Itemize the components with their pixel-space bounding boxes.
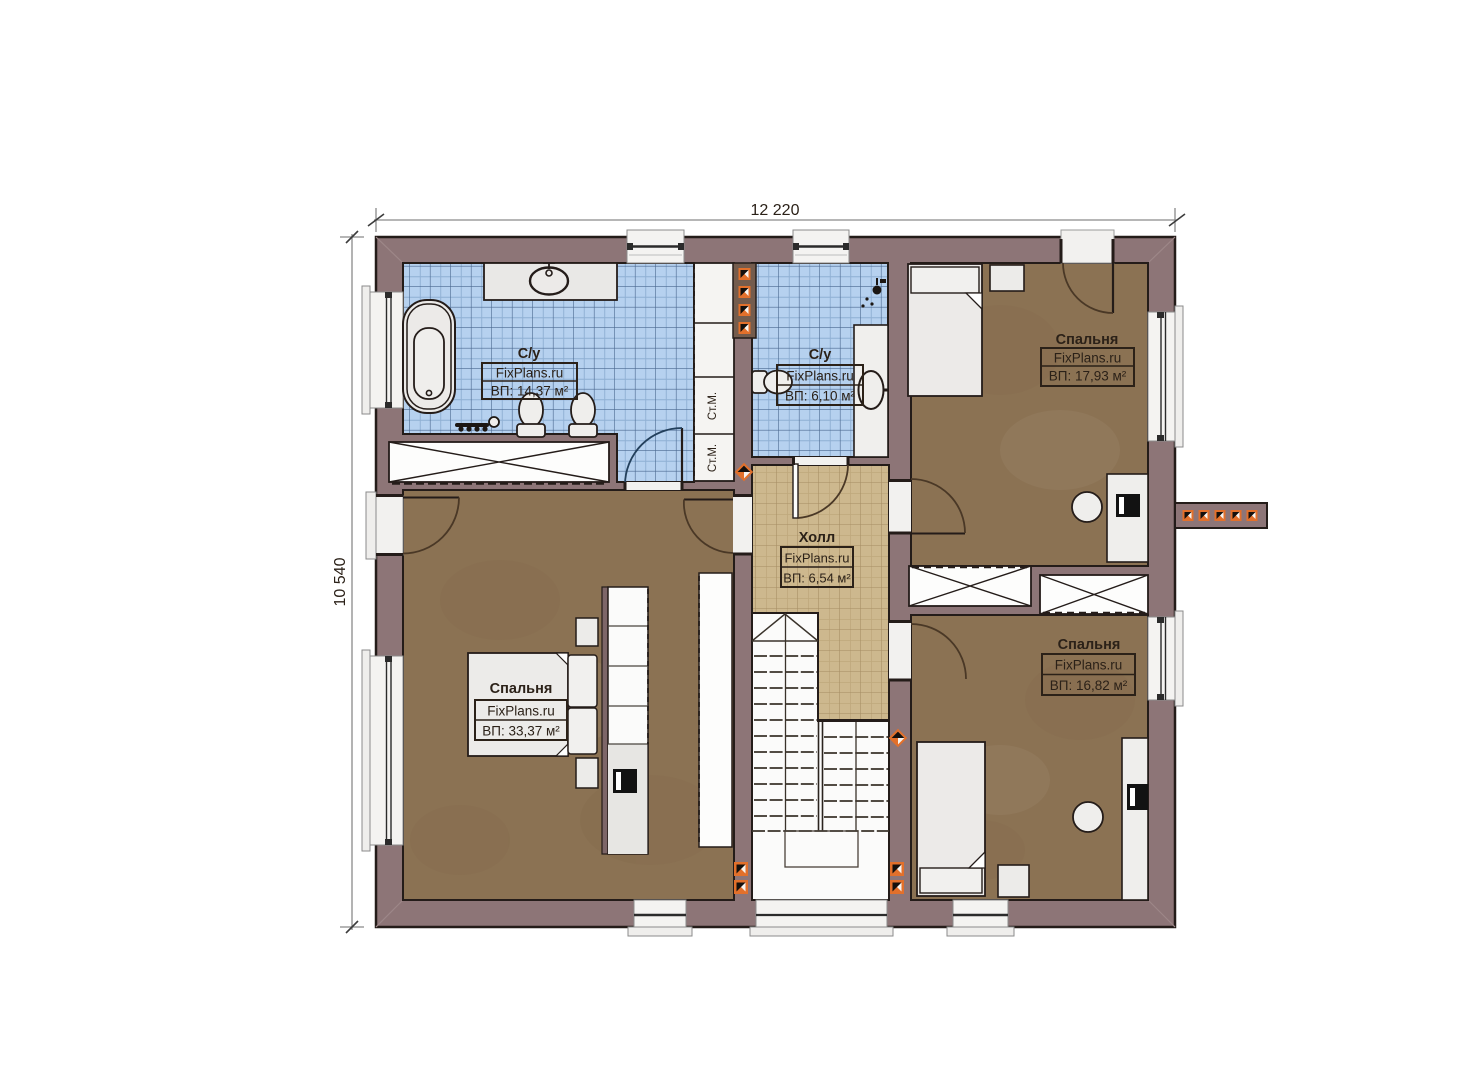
svg-text:Ст.М.: Ст.М. — [707, 392, 719, 420]
svg-text:ВП: 16,82 м²: ВП: 16,82 м² — [1050, 678, 1128, 693]
svg-text:ВП: 33,37 м²: ВП: 33,37 м² — [482, 724, 560, 739]
svg-text:ВП: 17,93 м²: ВП: 17,93 м² — [1049, 369, 1127, 384]
svg-text:Спальня: Спальня — [1056, 332, 1119, 348]
svg-text:С/у: С/у — [518, 346, 541, 362]
svg-text:FixPlans.ru: FixPlans.ru — [487, 704, 555, 719]
svg-text:12 220: 12 220 — [751, 202, 800, 219]
svg-text:Спальня: Спальня — [490, 681, 553, 697]
svg-text:Холл: Холл — [799, 530, 835, 546]
svg-text:FixPlans.ru: FixPlans.ru — [786, 369, 854, 384]
svg-text:FixPlans.ru: FixPlans.ru — [1055, 658, 1123, 673]
svg-text:Спальня: Спальня — [1058, 637, 1121, 653]
svg-text:ВП: 6,54 м²: ВП: 6,54 м² — [783, 571, 851, 586]
svg-text:С/у: С/у — [809, 347, 832, 363]
svg-text:FixPlans.ru: FixPlans.ru — [1054, 351, 1122, 366]
svg-text:ВП: 14,37 м²: ВП: 14,37 м² — [491, 384, 569, 399]
svg-text:FixPlans.ru: FixPlans.ru — [784, 551, 849, 566]
svg-text:ВП: 6,10 м²: ВП: 6,10 м² — [785, 389, 856, 404]
svg-text:FixPlans.ru: FixPlans.ru — [496, 366, 564, 381]
svg-text:10 540: 10 540 — [332, 557, 349, 606]
svg-text:Ст.М.: Ст.М. — [707, 444, 719, 472]
